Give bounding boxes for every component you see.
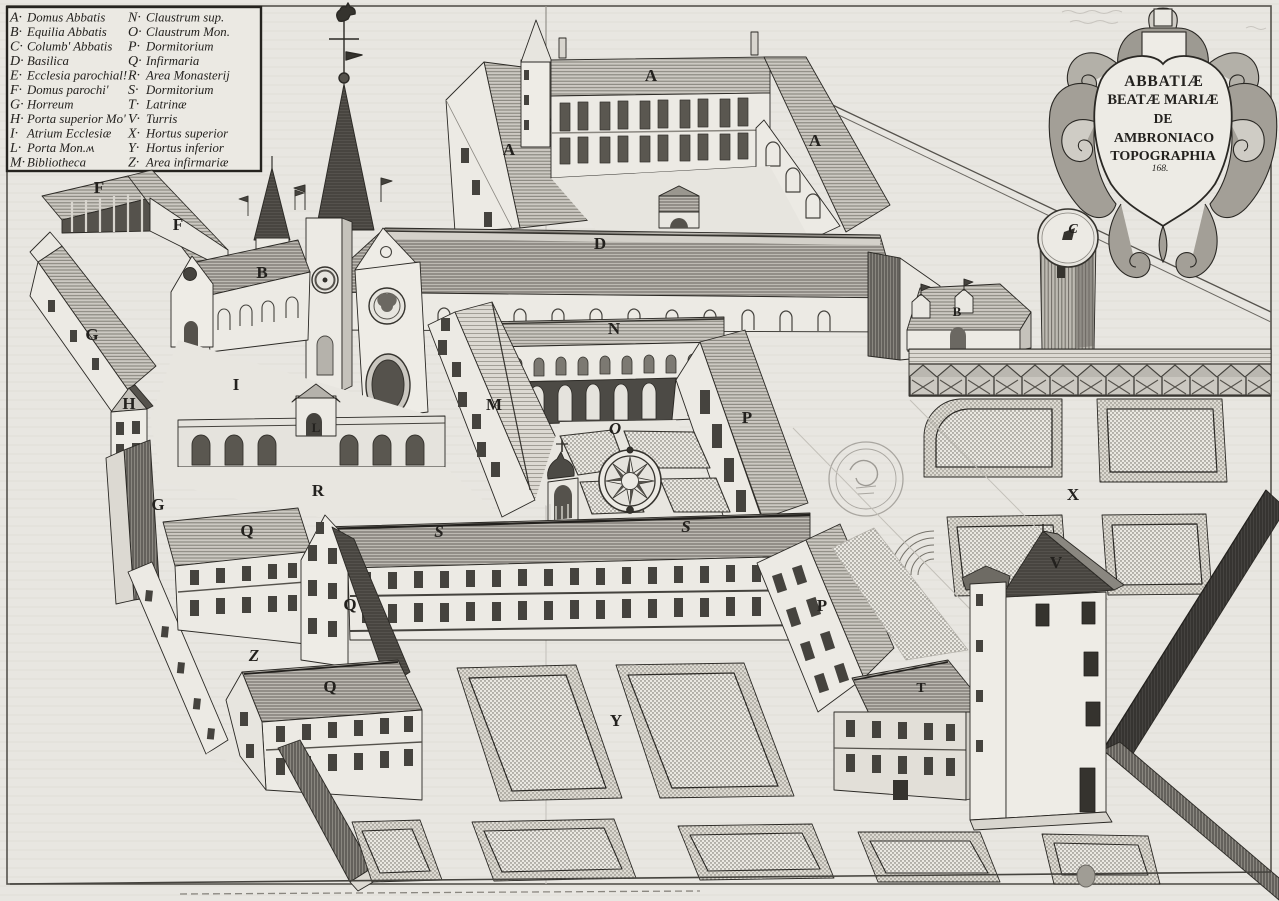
svg-text:ABBATIÆ: ABBATIÆ: [1124, 73, 1203, 90]
svg-text:Porta Mon.ʍ: Porta Mon.ʍ: [26, 141, 95, 155]
svg-text:H·: H·: [9, 112, 24, 127]
svg-text:V: V: [1050, 553, 1063, 572]
svg-text:Columb' Abbatis: Columb' Abbatis: [27, 40, 112, 54]
svg-text:Q: Q: [240, 521, 253, 540]
svg-text:N·: N·: [127, 11, 141, 26]
svg-text:Q: Q: [323, 677, 336, 696]
svg-text:Porta superior Mo': Porta superior Mo': [26, 112, 126, 126]
svg-text:M·: M·: [9, 156, 25, 171]
svg-text:I: I: [233, 375, 240, 394]
svg-text:F: F: [173, 215, 183, 234]
svg-text:B: B: [256, 263, 267, 282]
svg-text:G: G: [151, 495, 164, 514]
svg-text:L·: L·: [9, 141, 21, 156]
svg-text:TOPOGRAPHIA: TOPOGRAPHIA: [1110, 149, 1216, 164]
svg-text:G: G: [85, 325, 98, 344]
svg-text:N: N: [608, 319, 621, 338]
svg-text:O·: O·: [128, 25, 142, 40]
svg-text:Dormitorium: Dormitorium: [145, 40, 214, 54]
svg-text:P·: P·: [127, 40, 140, 55]
svg-text:Claustrum sup.: Claustrum sup.: [146, 11, 224, 25]
svg-text:Hortus inferior: Hortus inferior: [145, 141, 225, 155]
svg-text:Y·: Y·: [128, 141, 139, 156]
svg-text:Horreum: Horreum: [26, 98, 73, 112]
svg-text:Domus parochi': Domus parochi': [26, 83, 109, 97]
svg-text:Equilia Abbatis: Equilia Abbatis: [26, 25, 107, 39]
svg-text:G·: G·: [10, 98, 24, 113]
svg-text:V·: V·: [128, 112, 140, 127]
svg-text:Ecclesia parochial!: Ecclesia parochial!: [26, 69, 127, 83]
svg-text:DE: DE: [1154, 111, 1173, 126]
svg-text:M: M: [486, 395, 502, 414]
svg-text:L: L: [312, 420, 321, 435]
svg-text:Claustrum Mon.: Claustrum Mon.: [146, 25, 230, 39]
svg-text:Y: Y: [610, 711, 622, 730]
svg-text:A: A: [645, 66, 658, 85]
svg-text:Bibliotheca: Bibliotheca: [27, 156, 86, 170]
svg-text:X·: X·: [127, 127, 140, 142]
svg-text:BEATÆ MARIÆ: BEATÆ MARIÆ: [1107, 92, 1218, 108]
svg-text:Z·: Z·: [128, 156, 139, 171]
svg-text:C·: C·: [10, 40, 23, 55]
svg-text:S·: S·: [128, 83, 139, 98]
svg-text:Infirmaria: Infirmaria: [145, 54, 199, 68]
svg-text:168.: 168.: [1152, 164, 1169, 174]
svg-text:Dormitorium: Dormitorium: [145, 83, 214, 97]
svg-text:R·: R·: [127, 69, 140, 84]
svg-text:B: B: [953, 304, 962, 319]
svg-text:Q: Q: [343, 595, 356, 614]
svg-text:AMBRONIACO: AMBRONIACO: [1114, 131, 1214, 146]
svg-text:T: T: [916, 681, 926, 696]
svg-text:Domus Abbatis: Domus Abbatis: [26, 11, 105, 25]
svg-text:B·: B·: [10, 25, 22, 40]
svg-text:Turris: Turris: [146, 112, 177, 126]
svg-text:Basilica: Basilica: [27, 54, 69, 68]
svg-text:Z: Z: [248, 646, 259, 665]
svg-text:D: D: [594, 234, 606, 253]
svg-text:E·: E·: [9, 69, 22, 84]
svg-text:C: C: [1068, 222, 1078, 237]
svg-text:H: H: [122, 394, 135, 413]
svg-text:A: A: [809, 131, 822, 150]
svg-text:F: F: [94, 178, 104, 197]
svg-text:R: R: [312, 481, 325, 500]
svg-text:Atrium Ecclesiæ: Atrium Ecclesiæ: [26, 127, 112, 141]
svg-text:O: O: [609, 419, 621, 438]
svg-text:X: X: [1067, 485, 1080, 504]
svg-text:A: A: [503, 140, 516, 159]
svg-text:Area infirmariæ: Area infirmariæ: [145, 156, 229, 170]
svg-text:F·: F·: [9, 83, 22, 98]
svg-text:S: S: [434, 522, 443, 541]
svg-text:Hortus superior: Hortus superior: [145, 127, 229, 141]
svg-text:Q·: Q·: [128, 54, 142, 69]
svg-text:A·: A·: [9, 11, 22, 26]
svg-text:I·: I·: [9, 127, 18, 142]
svg-text:D·: D·: [9, 54, 24, 69]
svg-text:P: P: [742, 408, 752, 427]
svg-text:Area Monasterij: Area Monasterij: [145, 69, 230, 83]
svg-text:T·: T·: [128, 98, 139, 113]
svg-text:P: P: [817, 596, 827, 615]
svg-text:Latrinæ: Latrinæ: [145, 98, 187, 112]
svg-text:S: S: [681, 517, 690, 536]
